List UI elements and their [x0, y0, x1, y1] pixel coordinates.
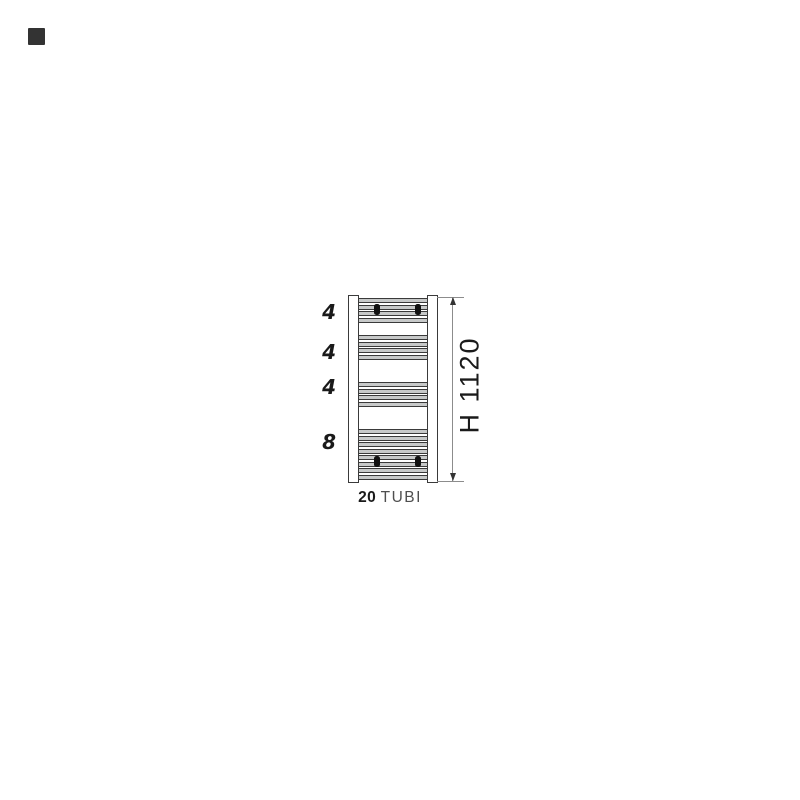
tube-group-label-4: 8 [308, 431, 336, 453]
radiator-tube [359, 468, 427, 473]
mount-bracket-dot-top-right [415, 304, 421, 315]
dimension-vertical-line [452, 297, 453, 481]
radiator-tube [359, 449, 427, 454]
radiator-tube [359, 389, 427, 394]
dimension-arrow-up-icon [450, 297, 456, 305]
dimension-arrow-down-icon [450, 473, 456, 481]
tube-group-label-2: 4 [308, 341, 336, 363]
tube-total-number: 20 [358, 489, 376, 506]
radiator-tube [359, 436, 427, 441]
tube-total-caption: 20 TUBI [320, 489, 460, 507]
radiator-tube [359, 429, 427, 434]
radiator-tube [359, 382, 427, 387]
finish-color-swatch [28, 28, 45, 45]
radiator-tube [359, 348, 427, 353]
radiator-left-rail [348, 295, 359, 483]
radiator-tube [359, 442, 427, 447]
mount-bracket-dot-bottom-right [415, 456, 421, 467]
radiator-tube [359, 298, 427, 303]
radiator-tube [359, 395, 427, 400]
height-dimension-label: H 1120 [455, 336, 486, 433]
tube-total-word: TUBI [381, 489, 422, 506]
radiator-tube [359, 342, 427, 347]
radiator-tube [359, 355, 427, 360]
product-diagram-page: 4 4 4 8 H 1120 20 TUBI [0, 0, 800, 800]
tube-group-label-1: 4 [308, 301, 336, 323]
radiator-right-rail [427, 295, 438, 483]
tube-group-label-3: 4 [308, 376, 336, 398]
mount-bracket-dot-top-left [374, 304, 380, 315]
radiator-tube [359, 318, 427, 323]
radiator-tube [359, 475, 427, 480]
mount-bracket-dot-bottom-left [374, 456, 380, 467]
radiator-tube [359, 335, 427, 340]
dimension-extension-line-bottom [437, 481, 464, 482]
radiator-tube [359, 402, 427, 407]
